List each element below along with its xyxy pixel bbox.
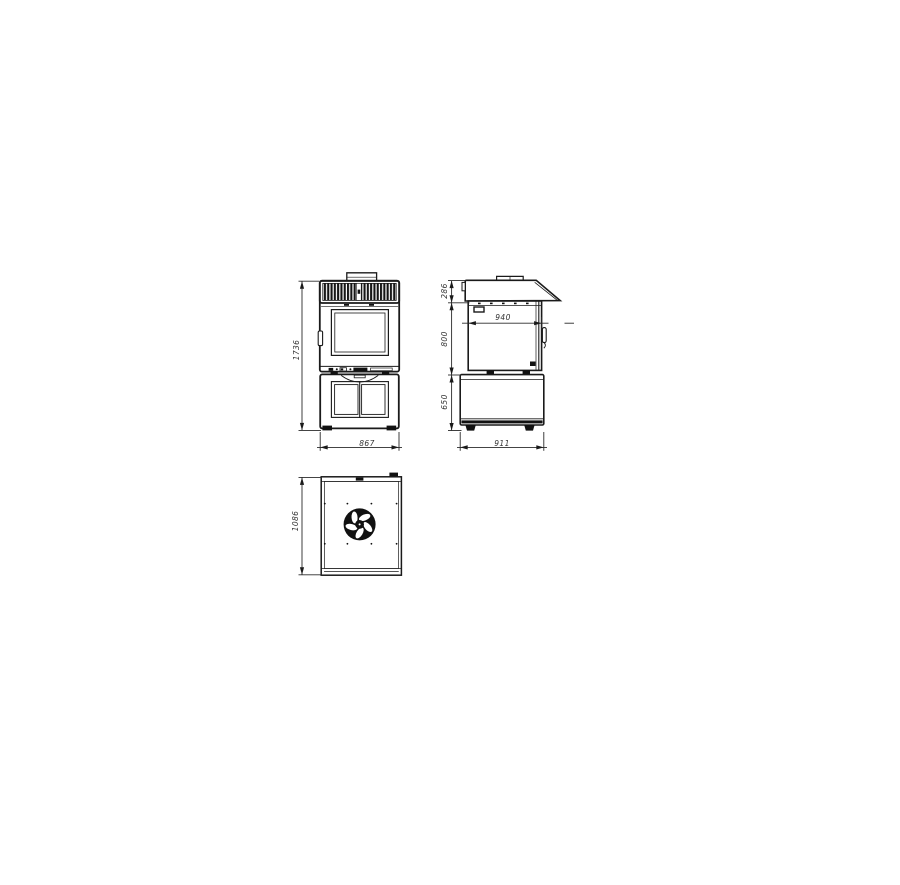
dim-front-overall-width: 867 xyxy=(352,439,382,449)
dim-front-overall-height: 1736 xyxy=(292,335,302,365)
dim-side-inner-depth: 940 xyxy=(488,313,518,323)
dim-rear-panel-height: 1086 xyxy=(291,506,301,536)
dim-side-stand-height: 650 xyxy=(440,387,450,417)
stand-side xyxy=(460,375,544,431)
rear-view xyxy=(321,473,401,576)
side-door-handle xyxy=(542,328,546,343)
control-strip xyxy=(329,368,393,371)
door-window xyxy=(331,310,388,356)
display-panel xyxy=(474,307,484,312)
dim-side-overall-depth: 911 xyxy=(487,439,517,449)
front-view xyxy=(318,273,399,431)
drawing-canvas xyxy=(0,0,900,885)
door-handle xyxy=(318,331,322,346)
dim-side-hood-height: 286 xyxy=(440,276,450,306)
fan-icon xyxy=(343,508,376,540)
stand-front xyxy=(320,371,399,430)
hood xyxy=(465,280,560,301)
side-view xyxy=(460,276,560,430)
dim-side-body-height: 800 xyxy=(440,324,450,354)
technical-drawing-page: 1736 867 286 800 650 940 911 1086 xyxy=(0,0,900,885)
